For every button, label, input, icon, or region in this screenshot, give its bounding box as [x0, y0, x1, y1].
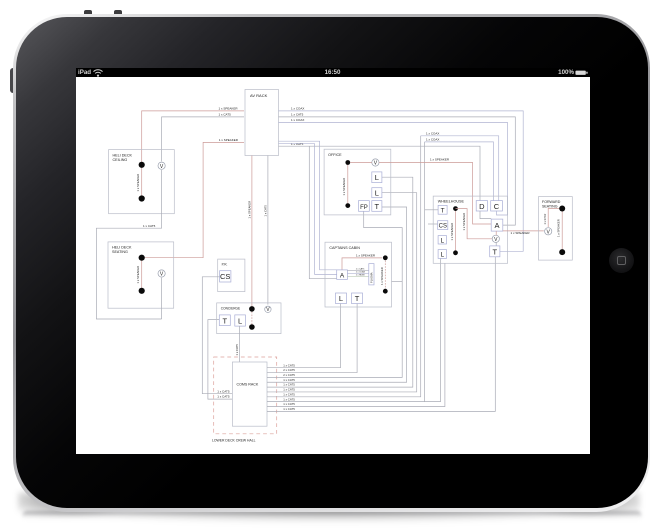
svg-text:1 x SPEAKER: 1 x SPEAKER: [450, 223, 454, 241]
svg-text:1 x COAX: 1 x COAX: [291, 107, 304, 111]
svg-text:HELI DECK: HELI DECK: [113, 153, 133, 157]
svg-text:AV RACK: AV RACK: [250, 93, 268, 98]
svg-text:1 x COAX: 1 x COAX: [356, 270, 366, 273]
svg-text:1 x CAT5: 1 x CAT5: [291, 113, 304, 117]
svg-text:CONCIERGE: CONCIERGE: [221, 306, 240, 310]
svg-text:OFFICE: OFFICE: [328, 153, 342, 157]
svg-text:1 x CAT5: 1 x CAT5: [217, 395, 230, 399]
svg-text:1 x SPEAKER: 1 x SPEAKER: [511, 231, 531, 235]
svg-text:COMS RACK: COMS RACK: [237, 382, 259, 386]
svg-text:1 x CAT5: 1 x CAT5: [283, 388, 295, 392]
svg-text:SEATING: SEATING: [112, 250, 128, 254]
svg-text:1 x SPKR: 1 x SPKR: [544, 213, 547, 224]
svg-text:1 x COAX: 1 x COAX: [426, 138, 439, 142]
svg-text:1 x COAX: 1 x COAX: [291, 118, 304, 122]
svg-text:1 x SPEAKER: 1 x SPEAKER: [219, 107, 239, 111]
svg-text:1 x SPEAKER: 1 x SPEAKER: [219, 138, 239, 142]
svg-text:SEATING: SEATING: [542, 205, 558, 209]
svg-text:2 x CAT5: 2 x CAT5: [283, 373, 295, 377]
svg-text:1 x CAT5: 1 x CAT5: [283, 402, 295, 406]
svg-text:WHEELHOUSE: WHEELHOUSE: [438, 199, 465, 203]
svg-text:C: C: [494, 202, 500, 211]
svg-text:T: T: [441, 208, 445, 215]
svg-text:1 x COAX: 1 x COAX: [426, 131, 439, 135]
svg-text:P.R.: P.R.: [222, 263, 228, 267]
svg-text:1 x SPEAKER: 1 x SPEAKER: [430, 158, 450, 162]
svg-text:1 x CAT5: 1 x CAT5: [219, 113, 232, 117]
svg-text:1 x SPEAKER: 1 x SPEAKER: [342, 178, 346, 196]
svg-text:A: A: [340, 273, 345, 280]
svg-text:PLASMA: PLASMA: [369, 272, 373, 283]
svg-text:1 x HDMI: 1 x HDMI: [356, 274, 365, 276]
svg-text:LOWER DECK CREW HALL: LOWER DECK CREW HALL: [212, 438, 256, 442]
svg-text:1 x CAT5: 1 x CAT5: [235, 344, 239, 356]
svg-text:1 x CAT5: 1 x CAT5: [283, 392, 295, 396]
svg-text:L: L: [339, 294, 343, 303]
svg-text:1 x CAT5: 1 x CAT5: [283, 378, 295, 382]
svg-text:L: L: [375, 189, 379, 198]
svg-text:L: L: [375, 173, 379, 182]
svg-text:1 x SPEAKER: 1 x SPEAKER: [248, 201, 252, 219]
svg-text:1 x CAT5: 1 x CAT5: [283, 383, 295, 387]
svg-text:FP: FP: [360, 205, 368, 211]
svg-text:A: A: [494, 221, 499, 230]
svg-text:L: L: [440, 252, 444, 259]
svg-text:CS: CS: [439, 224, 447, 230]
svg-text:1 x CAT5: 1 x CAT5: [283, 397, 295, 401]
svg-text:1 x CAT5: 1 x CAT5: [264, 205, 268, 217]
svg-text:1 x CAT5: 1 x CAT5: [356, 267, 365, 270]
svg-text:T: T: [375, 202, 380, 211]
svg-text:1 x CAT5: 1 x CAT5: [283, 407, 295, 411]
svg-text:T: T: [493, 248, 498, 257]
svg-text:1 x SPEAKER: 1 x SPEAKER: [136, 266, 140, 284]
svg-text:D: D: [479, 202, 485, 211]
svg-text:1 x CAT5: 1 x CAT5: [283, 363, 295, 367]
svg-text:1 x SPEAKER: 1 x SPEAKER: [556, 219, 560, 237]
svg-text:CEILING: CEILING: [113, 158, 128, 162]
svg-text:T: T: [355, 294, 360, 303]
svg-text:HELI DECK: HELI DECK: [112, 246, 132, 250]
svg-text:1 x CAT5: 1 x CAT5: [217, 389, 230, 393]
svg-text:FORWARD: FORWARD: [542, 200, 561, 204]
svg-text:T: T: [223, 316, 228, 325]
svg-text:CS: CS: [220, 272, 230, 281]
svg-text:2 x CAT5: 2 x CAT5: [283, 368, 295, 372]
svg-text:CAPTAINS CABIN: CAPTAINS CABIN: [329, 246, 360, 250]
svg-text:1 x SPEAKER: 1 x SPEAKER: [380, 267, 384, 285]
svg-text:1 x SPEAKER: 1 x SPEAKER: [356, 254, 376, 258]
svg-text:L: L: [440, 238, 444, 245]
svg-text:L: L: [238, 316, 242, 325]
svg-text:1 x CAT5: 1 x CAT5: [143, 224, 156, 228]
svg-text:1 x SPEAKER: 1 x SPEAKER: [136, 174, 140, 192]
svg-text:1 x SPEAKER: 1 x SPEAKER: [462, 213, 466, 231]
